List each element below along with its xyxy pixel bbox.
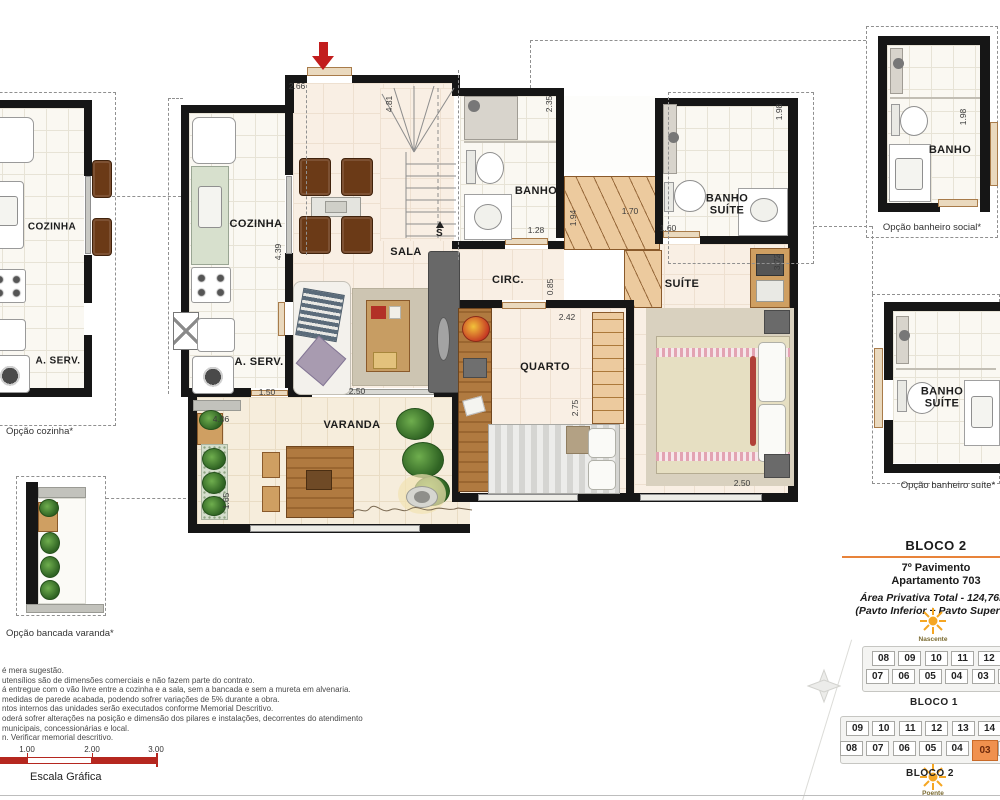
scale-segment	[0, 757, 27, 764]
keyplan-unit: 07	[866, 669, 889, 684]
dashed-connector	[112, 196, 181, 197]
dim-label-aserv_w: 1.50	[259, 387, 276, 397]
dim-label-varanda_w: 4.06	[213, 414, 230, 424]
bed-pillow	[588, 428, 616, 458]
dining-chair	[299, 216, 331, 254]
table-tray	[325, 201, 347, 213]
room-label-cozinha: COZINHA	[230, 218, 283, 230]
keyplan-unit: 11	[899, 721, 922, 736]
keyplan-unit: 12	[978, 651, 1000, 666]
basin	[971, 396, 993, 428]
toilet-tank	[466, 150, 476, 184]
stove	[191, 267, 231, 303]
sun-nascente-icon	[920, 608, 946, 634]
dining-chair	[341, 158, 373, 196]
decor-tray	[373, 352, 397, 369]
bed-cushion	[566, 426, 590, 454]
dining-chair	[299, 158, 331, 196]
dim-label-banho_h: 2.35	[544, 96, 554, 113]
decor-box	[371, 306, 386, 319]
duct-shaft	[173, 312, 199, 350]
keyplan-unit: 13	[952, 721, 975, 736]
floorplan-page: S	[0, 0, 1000, 800]
plant	[202, 448, 226, 470]
wall	[878, 36, 887, 212]
dashed-connector	[530, 40, 531, 88]
quarto-window	[478, 494, 578, 501]
wall	[884, 302, 893, 380]
nascente-label: Nascente	[919, 636, 948, 643]
option-cozinha-label: COZINHA	[28, 221, 76, 232]
info-panel: BLOCO 2 7º Pavimento Apartamento 703 Áre…	[836, 538, 1000, 617]
keyplan-unit: 10	[925, 651, 948, 666]
keyplan-unit: 05	[919, 741, 942, 756]
keyplan-unit: 08	[872, 651, 895, 666]
scale-label: Escala Gráfica	[30, 771, 102, 783]
wall	[285, 253, 293, 302]
nightstand	[764, 310, 790, 334]
desk-decor	[462, 316, 490, 342]
bancada-shelf	[38, 487, 86, 498]
stair-up-arrow-icon	[436, 221, 444, 228]
pavtos: (Pavto Inferior + Pavto Superior)	[836, 605, 1000, 618]
wall	[352, 75, 458, 83]
scale-tick-label: 1.00	[19, 745, 35, 754]
tv-panel-handle	[437, 317, 450, 361]
door	[990, 122, 998, 186]
keyplan-unit: 05	[919, 669, 942, 684]
toilet	[900, 106, 928, 136]
bed-throw	[750, 356, 756, 446]
plant	[402, 442, 444, 478]
keyplan-label-bloco2: BLOCO 2	[906, 768, 954, 779]
dashed-guide	[168, 98, 183, 99]
orange-rule	[842, 556, 1000, 558]
option-social-caption: Opção banheiro social*	[866, 222, 998, 233]
notes: é mera sugestão.utensílios são de dimens…	[2, 666, 422, 743]
dim-label-opt_social_v: 1.98	[958, 109, 968, 126]
wall	[285, 335, 293, 388]
dining-chair	[92, 160, 112, 198]
toilet	[476, 152, 504, 184]
keyplan-unit: 07	[866, 741, 889, 756]
fridge	[0, 117, 34, 163]
entry-arrow-icon	[312, 56, 334, 70]
pavimento: 7º Pavimento	[836, 562, 1000, 575]
bed-pillow	[588, 460, 616, 490]
keyplan-unit: 06	[893, 741, 916, 756]
dim-label-varanda_v: 1.65	[221, 493, 231, 510]
keyplan-unit: 10	[872, 721, 895, 736]
scale-tick-label: 3.00	[148, 745, 164, 754]
dining-chair	[341, 216, 373, 254]
keyplan-unit-highlighted: 03	[972, 740, 998, 761]
keyplan-unit: 14	[978, 721, 1000, 736]
keyplan-unit: 04	[945, 669, 968, 684]
note-line: n. Verificar memorial descritivo.	[2, 733, 422, 743]
dashed-guide	[306, 85, 307, 255]
dim-label-banho_w: 1.28	[528, 225, 545, 235]
wall	[626, 300, 634, 502]
dashed-guide	[458, 70, 459, 260]
plant	[40, 580, 60, 600]
dim-label-cozinha_v: 4.39	[273, 244, 283, 261]
varanda-bench	[262, 452, 280, 478]
frame-line	[0, 795, 1000, 796]
shaft-void	[564, 96, 656, 172]
dim-label-quarto_w: 2.42	[559, 312, 576, 322]
wall	[548, 241, 564, 249]
option-aserv-label: A. SERV.	[36, 355, 81, 366]
dim-label-circ_v: 0.85	[545, 279, 555, 296]
decor-box	[389, 306, 401, 319]
door	[874, 348, 883, 428]
kitchen-sink	[0, 196, 18, 226]
quarto-wardrobe	[592, 312, 624, 424]
keyplan-unit: 12	[925, 721, 948, 736]
wall	[884, 302, 1000, 311]
pass-counter	[85, 176, 91, 254]
dim-label-closet_w: 1.70	[622, 206, 639, 216]
dim-label-sala_w: 2.50	[349, 386, 366, 396]
dim-label-entry: 2.66	[289, 81, 306, 91]
centerpiece	[306, 470, 332, 490]
varanda-bench	[262, 486, 280, 512]
note-line: ntos internos das unidades serão executa…	[2, 704, 422, 714]
option-bancada-caption: Opção bancada varanda*	[6, 628, 114, 639]
room-label-banho: BANHO	[515, 185, 557, 197]
stove	[0, 269, 26, 303]
divider	[896, 368, 996, 370]
dim-label-suite_w: 2.50	[734, 478, 751, 488]
dresser-drawer	[756, 280, 784, 302]
wall	[556, 88, 564, 238]
scale-endtick	[156, 753, 158, 767]
divider	[890, 97, 980, 99]
wall	[188, 392, 197, 533]
apartamento: Apartamento 703	[836, 575, 1000, 588]
note-line: municipais, concessionárias e local.	[2, 724, 422, 734]
compass-icon	[806, 668, 842, 704]
note-line: é mera sugestão.	[2, 666, 422, 676]
plant	[396, 408, 434, 440]
room-label-circ: CIRC.	[492, 274, 524, 286]
wall	[878, 36, 990, 45]
dim-label-closet_v: 1.94	[568, 210, 578, 227]
note-line: utensílios são de dimensões comerciais e…	[2, 676, 422, 686]
wall	[884, 464, 1000, 473]
room-label-sala: SALA	[390, 246, 422, 258]
option-suite-label: BANHO SUÍTE	[911, 386, 973, 411]
nightstand	[764, 454, 790, 478]
wall	[84, 335, 92, 391]
wall	[84, 255, 92, 303]
wall	[84, 100, 92, 176]
bloco-title: BLOCO 2	[836, 538, 1000, 553]
suite-window	[640, 494, 762, 501]
washer	[192, 356, 234, 394]
divider	[464, 141, 556, 143]
dim-label-quarto_v: 2.75	[570, 400, 580, 417]
room-label-aserv: A. SERV.	[234, 356, 283, 368]
dashed-box	[668, 92, 814, 264]
wall	[285, 113, 293, 175]
toilet-tank	[897, 380, 907, 412]
bancada-shelf	[193, 400, 241, 411]
scale-segment	[92, 757, 156, 764]
basin	[895, 158, 923, 190]
dim-label-suite_v: 3.72	[772, 254, 782, 271]
dashed-connector	[106, 498, 186, 499]
wall	[546, 300, 634, 308]
wall	[452, 241, 505, 249]
dashed-connector	[814, 226, 872, 227]
wall	[181, 105, 293, 113]
plant	[39, 499, 59, 517]
keyplan-unit: 08	[840, 741, 863, 756]
keyplan-unit: 03	[972, 669, 995, 684]
entry-arrow-icon	[319, 42, 328, 57]
dining-chair	[92, 218, 112, 256]
option-cozinha-caption: Opção cozinha*	[6, 426, 73, 437]
plant	[40, 532, 60, 554]
sofa-pillow	[295, 288, 345, 343]
wall	[878, 203, 940, 212]
closet-top	[564, 176, 660, 250]
room-label-quarto: QUARTO	[520, 361, 570, 373]
keyplan-unit: 04	[946, 741, 969, 756]
scale-segment	[27, 757, 92, 764]
room-label-banho_suite: BANHO SUÍTE	[698, 193, 756, 218]
kitchen-sink	[198, 186, 222, 228]
note-line: medidas de parede acabada, podendo sofre…	[2, 695, 422, 705]
door	[938, 199, 978, 207]
room-label-varanda: VARANDA	[324, 419, 381, 431]
keyplan-unit: 11	[951, 651, 974, 666]
varanda-rail	[250, 525, 420, 532]
plant	[40, 556, 60, 578]
stair-marker: S	[436, 228, 443, 239]
basin	[474, 204, 502, 230]
area-privativa: Área Privativa Total - 124,76m²	[836, 592, 1000, 605]
note-line: á entregue com o vão livre entre a cozin…	[2, 685, 422, 695]
keyplan-unit: 06	[892, 669, 915, 684]
wall	[26, 482, 38, 604]
laundry-tank	[0, 319, 26, 351]
dim-label-bsuite_v: 1.98	[774, 104, 784, 121]
dashed-connector	[530, 40, 866, 41]
room-label-suite: SUÍTE	[665, 278, 699, 290]
keyplan-label-bloco1: BLOCO 1	[910, 697, 958, 708]
shower-head	[893, 58, 904, 69]
shower	[890, 48, 903, 94]
wall	[980, 36, 990, 212]
note-line: oderá sofrer alterações na posição e dim…	[2, 714, 422, 724]
washer	[0, 355, 30, 393]
kitchen-door	[278, 302, 285, 336]
laptop	[463, 358, 487, 378]
laundry-tank	[197, 318, 235, 352]
dim-label-stair: 4.81	[384, 96, 394, 113]
keyplan-unit: 09	[898, 651, 921, 666]
scale-tick-label: 2.00	[84, 745, 100, 754]
plant	[202, 472, 226, 494]
dashed-guide	[168, 98, 169, 394]
toilet-tank	[891, 104, 900, 136]
bed-pillow	[758, 342, 786, 402]
option-social-label: BANHO	[929, 144, 971, 156]
quarto-door	[502, 302, 546, 309]
dim-label-bsuite_w: 1.60	[660, 223, 677, 233]
option-suite-caption: Opção banheiro suíte*	[888, 480, 1000, 491]
shower-head	[899, 330, 910, 341]
keyplan-unit: 09	[846, 721, 869, 736]
artist-signature	[348, 500, 478, 520]
pass-counter	[286, 176, 292, 254]
wall	[0, 100, 92, 108]
wall	[181, 105, 189, 395]
bancada-edge	[26, 604, 104, 613]
shower-head	[468, 100, 480, 112]
fridge	[192, 117, 236, 164]
